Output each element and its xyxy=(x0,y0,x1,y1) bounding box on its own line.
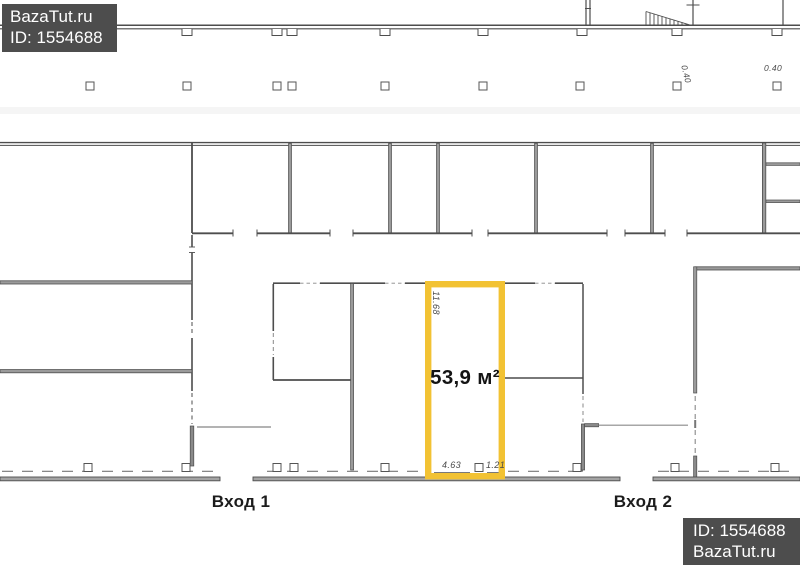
column-grid-upper xyxy=(86,82,781,90)
unit-area-label: 53,9 м² xyxy=(424,366,506,390)
bottom-facade-wall xyxy=(0,477,800,481)
staircase-icon xyxy=(646,12,691,26)
entrance-1-label: Вход 1 xyxy=(195,492,287,512)
unit-front-dimension: 4.63 xyxy=(433,460,470,470)
right-block xyxy=(694,267,800,478)
floorplan-drawing xyxy=(0,0,800,572)
roof-axis-marker xyxy=(687,0,784,25)
column-grid-lower xyxy=(84,464,779,472)
watermark-top: BazaTut.ru ID: 1554688 xyxy=(2,4,117,52)
corridor-wall xyxy=(189,235,195,424)
left-walls xyxy=(0,281,192,373)
watermark-bottom: ID: 1554688 BazaTut.ru xyxy=(683,518,800,565)
watermark-bottom-id: ID: 1554688 xyxy=(693,520,800,541)
upper-band-partitions xyxy=(192,143,766,233)
floor-tint-band xyxy=(0,107,800,114)
outer-top-wall xyxy=(0,25,800,29)
watermark-bottom-site: BazaTut.ru xyxy=(693,541,800,562)
watermark-top-site: BazaTut.ru xyxy=(10,6,117,27)
column-dimension-right: 0.40 xyxy=(764,63,782,73)
entrance-2-label: Вход 2 xyxy=(597,492,689,512)
watermark-top-id: ID: 1554688 xyxy=(10,27,117,48)
floorplan-image: BazaTut.ru ID: 1554688 ID: 1554688 BazaT… xyxy=(0,0,800,572)
upper-band-top-wall xyxy=(0,143,800,146)
right-compartments xyxy=(766,163,800,203)
unit-column-dimension: 1.21 xyxy=(486,460,506,470)
corridor-wall-thick xyxy=(190,426,194,466)
top-wall-pilasters xyxy=(182,29,782,36)
unit-side-dimension: 11.68 xyxy=(431,291,441,315)
roof-duct xyxy=(585,0,591,25)
